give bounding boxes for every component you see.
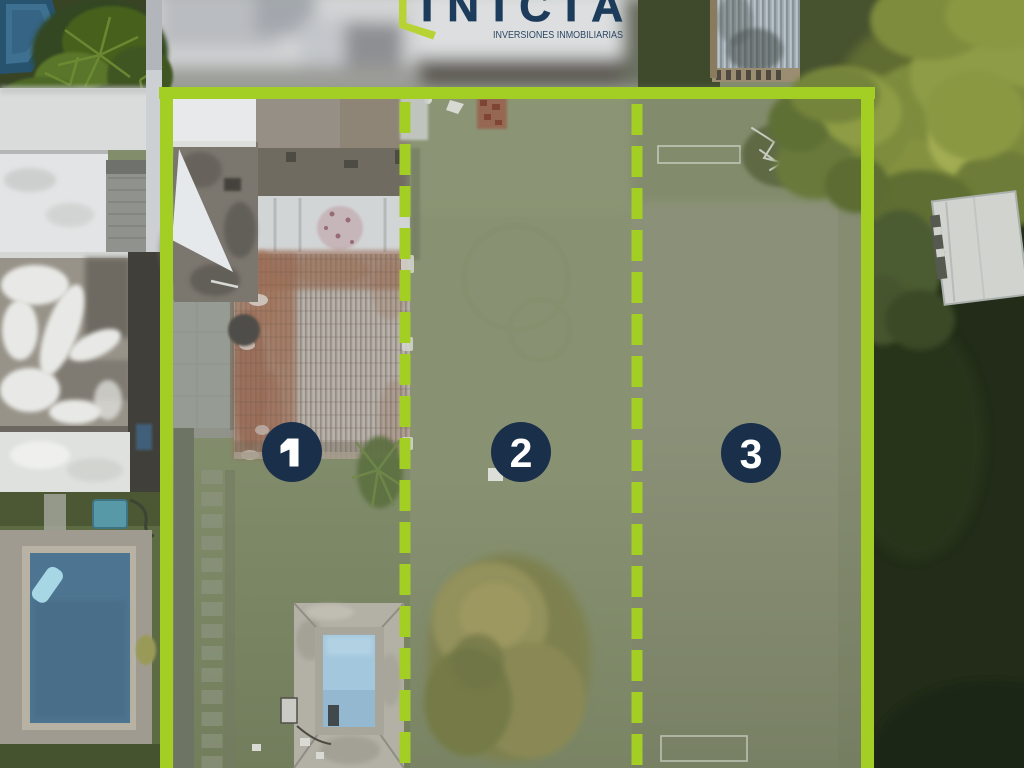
svg-text:INVERSIONES INMOBILIARIAS: INVERSIONES INMOBILIARIAS [493,30,623,41]
svg-text:2: 2 [510,430,533,476]
svg-text:INICIA: INICIA [421,0,623,31]
svg-text:3: 3 [740,431,763,477]
